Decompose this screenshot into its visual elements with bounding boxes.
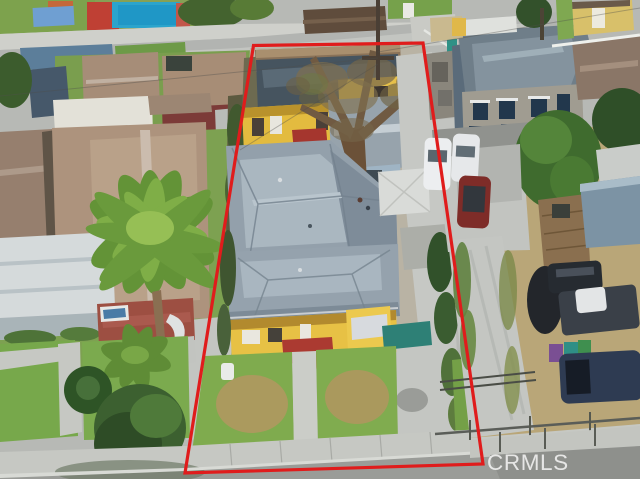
svg-text:CRMLS: CRMLS <box>487 450 569 475</box>
